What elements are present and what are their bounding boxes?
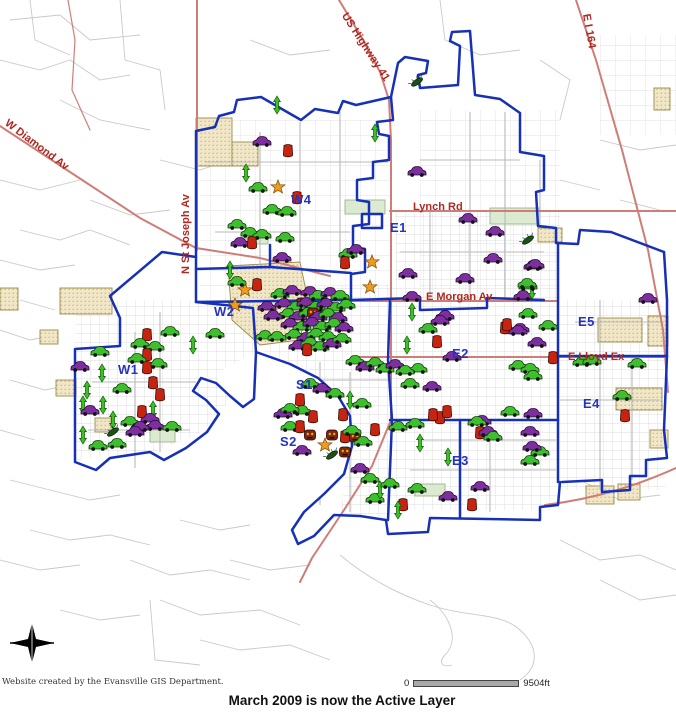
red-blob-marker[interactable] <box>442 406 451 418</box>
red-blob-marker[interactable] <box>283 145 292 157</box>
district-label-s1: S1 <box>296 377 313 392</box>
district-label-s2: S2 <box>280 434 297 449</box>
red-blob-marker[interactable] <box>247 237 256 249</box>
scale-zero-label: 0 <box>404 678 409 689</box>
district-label-e2: E2 <box>452 346 469 361</box>
red-blob-marker[interactable] <box>338 409 347 421</box>
street-label-n-st-joseph-av: N St Joseph Av <box>180 194 192 274</box>
red-blob-marker[interactable] <box>295 421 304 433</box>
district-label-w4: W4 <box>291 192 312 207</box>
red-blob-marker[interactable] <box>548 352 557 364</box>
district-label-w1: W1 <box>118 362 139 377</box>
district-label-e4: E4 <box>583 396 600 411</box>
street-label-e-lloyd-ex: E Lloyd Ex <box>568 351 624 363</box>
district-label-e5: E5 <box>578 314 595 329</box>
district-label-e3: E3 <box>452 453 469 468</box>
street-label-lynch-rd: Lynch Rd <box>413 201 463 213</box>
red-blob-marker[interactable] <box>428 409 437 421</box>
credit-text: Website created by the Evansville GIS De… <box>2 677 224 687</box>
active-layer-status: March 2009 is now the Active Layer <box>229 693 456 708</box>
north-arrow-icon <box>8 621 56 665</box>
scale-bar-rect <box>413 680 519 687</box>
red-blob-marker[interactable] <box>302 344 311 356</box>
red-blob-marker[interactable] <box>148 377 157 389</box>
mask-marker[interactable] <box>305 430 316 440</box>
street-label-e-morgan-av: E Morgan Av <box>426 291 492 303</box>
scale-bar: 0 9504ft <box>404 678 550 689</box>
red-blob-marker[interactable] <box>308 411 317 423</box>
purple-car-marker[interactable] <box>639 294 657 304</box>
red-blob-marker[interactable] <box>340 257 349 269</box>
bug-marker[interactable] <box>408 73 425 88</box>
mask-marker[interactable] <box>340 447 351 457</box>
scale-distance-label: 9504ft <box>523 678 549 689</box>
red-blob-marker[interactable] <box>370 424 379 436</box>
mask-marker[interactable] <box>327 430 338 440</box>
red-blob-marker[interactable] <box>620 410 629 422</box>
red-blob-marker[interactable] <box>295 394 304 406</box>
urban-street-grids <box>75 35 676 515</box>
map-viewport[interactable]: W1W2W4S1S2E1E2E3E4E5 W Diamond AvN St Jo… <box>0 0 676 719</box>
red-blob-marker[interactable] <box>432 336 441 348</box>
red-blob-marker[interactable] <box>502 319 511 331</box>
red-blob-marker[interactable] <box>142 362 151 374</box>
red-blob-marker[interactable] <box>252 279 261 291</box>
district-label-w2: W2 <box>214 304 235 319</box>
red-blob-marker[interactable] <box>155 389 164 401</box>
district-label-e1: E1 <box>390 220 407 235</box>
red-blob-marker[interactable] <box>467 499 476 511</box>
